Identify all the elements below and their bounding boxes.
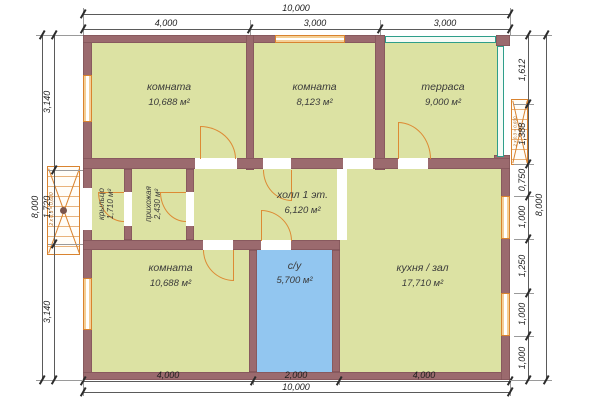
door-opening-terrace: [398, 158, 428, 169]
room-top-left-area: 10,688 м²: [92, 98, 246, 108]
dim-bottom-seg-2: 2,000: [246, 370, 346, 380]
hall-area: 6,120 м²: [245, 206, 360, 216]
dim-top-seg-3: 3,000: [395, 18, 495, 28]
dim-line-right-segments: [528, 35, 529, 380]
room-bottom-left-label: комната: [92, 263, 249, 275]
porch-area-text: 1,710 м²: [106, 174, 115, 234]
room-top-mid-area: 8,123 м²: [254, 98, 375, 108]
dim-left-seg-3: 3,140: [42, 272, 52, 352]
dim-top-total: 10,000: [246, 3, 346, 13]
porch-label-text: крыльцо: [97, 174, 106, 234]
dim-right-seg-7: 1,000: [517, 318, 527, 398]
terrace-label: терраса: [385, 82, 501, 94]
floor-plan: 2 х 0,3 = 0,600 2 х 0,3 = 0,600 комната …: [0, 0, 600, 403]
threshold-hall-kitchen: [337, 169, 347, 240]
passage-opening-kitchen-top: [343, 158, 373, 169]
window-right-kitchen-upper: [501, 196, 510, 239]
bathroom-label: с/у: [257, 261, 332, 273]
hall-label: холл 1 эт.: [245, 190, 360, 202]
wall-bathroom-right: [332, 250, 340, 372]
window-left-top-room: [83, 75, 92, 122]
window-left-bottom-room: [83, 278, 92, 330]
window-right-kitchen-lower: [501, 293, 510, 336]
terrace-glazing-top: [385, 36, 496, 43]
dim-line-bottom-total: [83, 392, 510, 393]
dim-left-total: 8,000: [30, 167, 40, 247]
entry-label-text: прихожая: [144, 174, 153, 234]
terrace-area: 9,000 м²: [385, 98, 501, 108]
entrance-opening: [83, 188, 92, 230]
door-opening-room-top-left: [195, 158, 237, 169]
door-opening-room-bottom-left: [203, 240, 233, 250]
dim-top-seg-1: 4,000: [116, 18, 216, 28]
dim-top-seg-2: 3,000: [265, 18, 365, 28]
door-opening-entry-hall: [186, 192, 194, 226]
extension-line: [36, 380, 83, 381]
extension-line: [36, 35, 83, 36]
dim-left-seg-2: 1,720: [42, 167, 52, 247]
wall-room-terrace: [375, 35, 385, 170]
steps-center-dot: [60, 207, 67, 214]
dim-line-left-segments: [54, 35, 55, 380]
room-top-left-label: комната: [92, 82, 246, 94]
dim-line-top-total: [83, 14, 510, 15]
bathroom-area: 5,700 м²: [257, 276, 332, 286]
door-opening-bathroom: [261, 240, 291, 250]
porch-label: крыльцо 1,710 м²: [97, 174, 119, 234]
dim-bottom-seg-3: 4,000: [374, 370, 474, 380]
dim-bottom-total: 10,000: [246, 382, 346, 392]
room-top-mid-label: комната: [254, 82, 375, 94]
door-opening-room-top-mid: [263, 158, 291, 169]
dim-bottom-seg-1: 4,000: [118, 370, 218, 380]
wall-between-top-rooms: [246, 35, 254, 170]
dim-line-top-segments: [83, 29, 510, 30]
terrace-corner-post-top-right: [496, 35, 510, 46]
window-top-mid-room: [275, 35, 345, 43]
kitchen-area: 17,710 м²: [360, 279, 485, 289]
kitchen-label: кухня / зал: [360, 263, 485, 275]
exterior-wall-right: [501, 155, 510, 380]
door-opening-porch-entry: [124, 192, 132, 226]
entry-label: прихожая 2,430 м²: [144, 174, 166, 234]
room-bottom-left-area: 10,688 м²: [92, 279, 249, 289]
entry-area-text: 2,430 м²: [153, 174, 162, 234]
dim-right-total: 8,000: [534, 165, 544, 245]
wall-middle-horizontal: [83, 158, 510, 169]
wall-bathroom-left: [249, 250, 257, 372]
dim-left-seg-1: 3,140: [42, 62, 52, 142]
dim-line-right-total: [546, 35, 547, 380]
